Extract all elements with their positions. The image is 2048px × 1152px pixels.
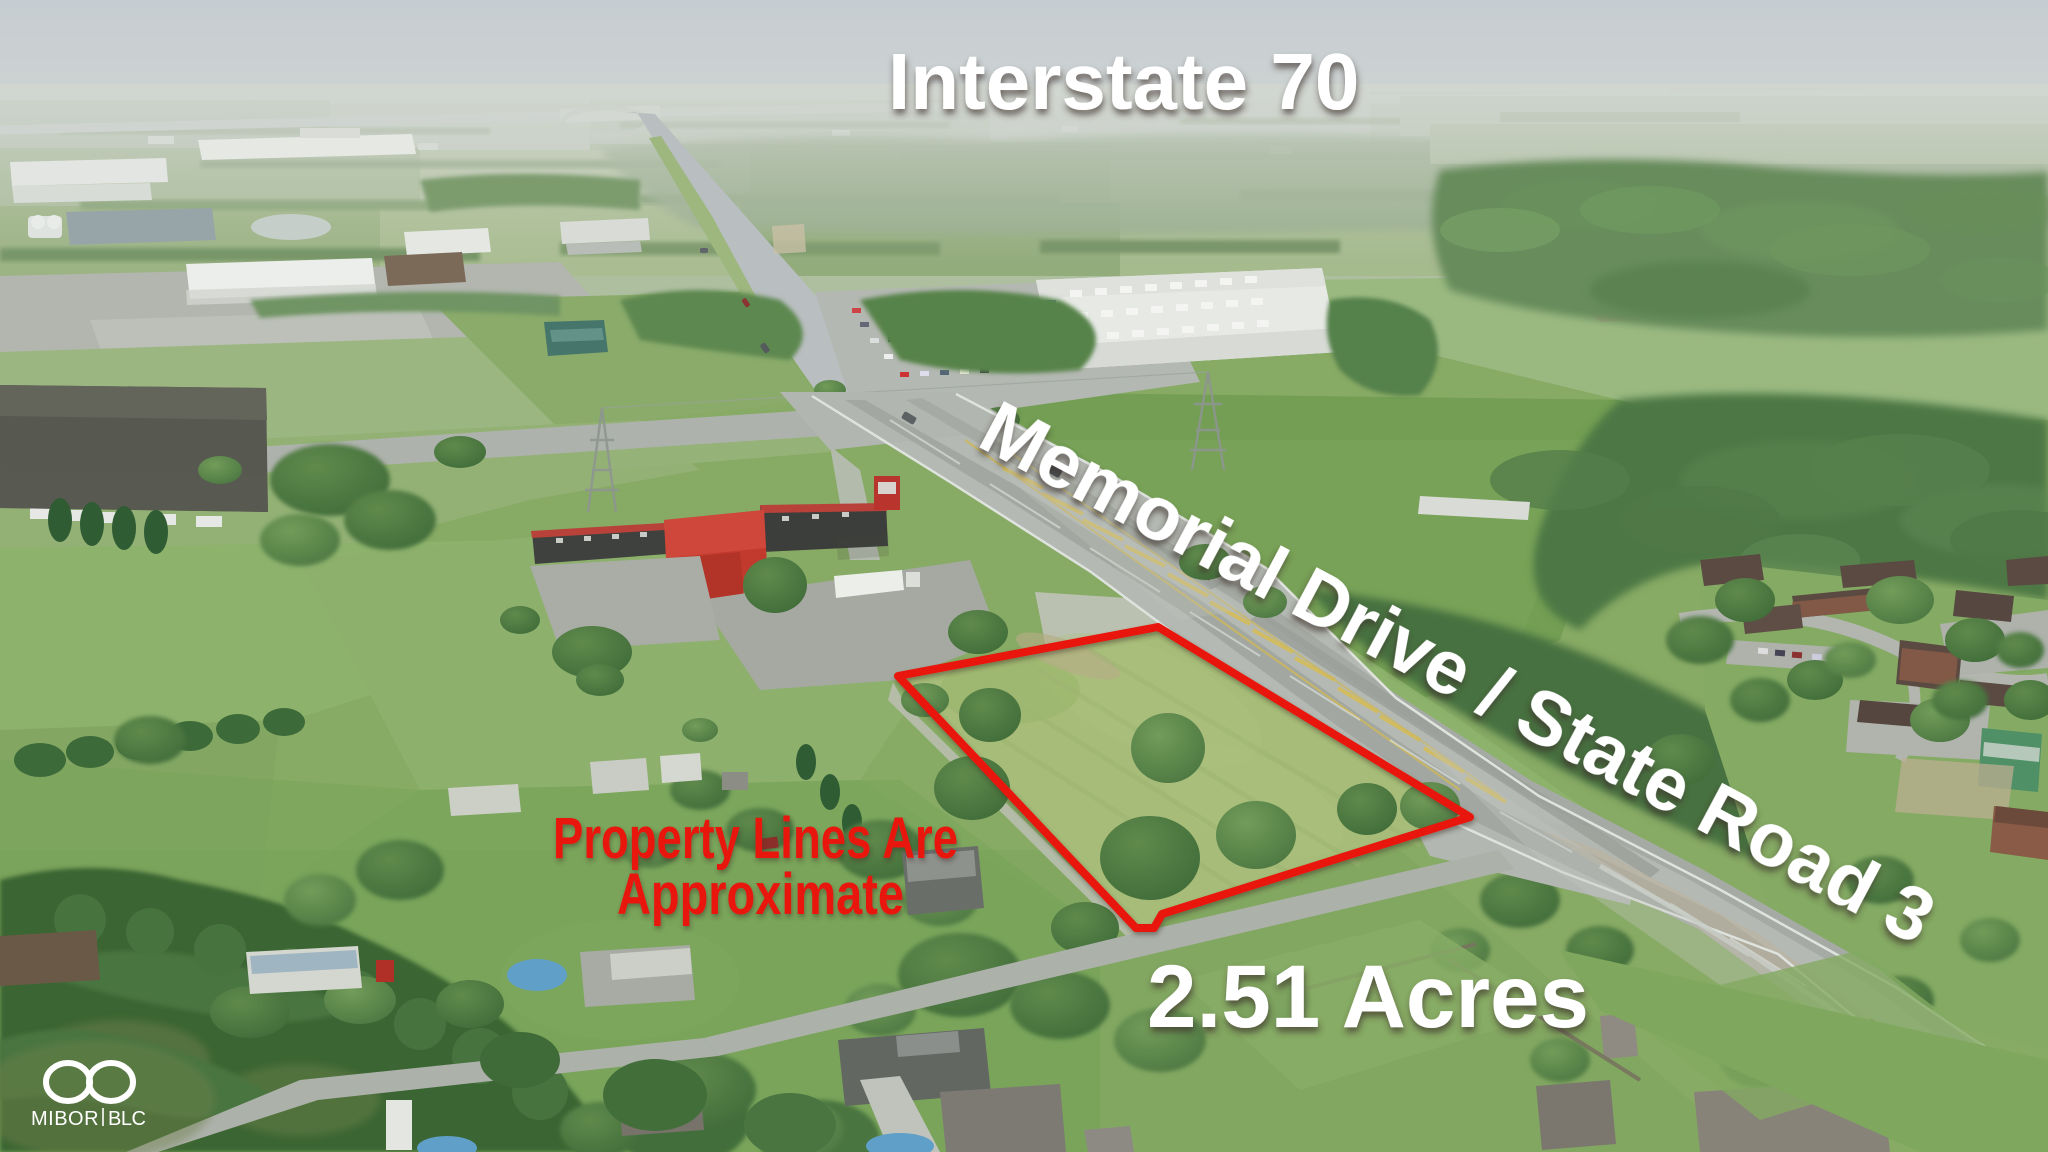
svg-text:BLC: BLC (108, 1108, 145, 1130)
svg-text:Approximate: Approximate (617, 862, 904, 927)
svg-text:Interstate 70: Interstate 70 (888, 37, 1359, 126)
svg-text:2.51 Acres: 2.51 Acres (1147, 946, 1589, 1046)
svg-text:MIBOR: MIBOR (31, 1108, 99, 1130)
